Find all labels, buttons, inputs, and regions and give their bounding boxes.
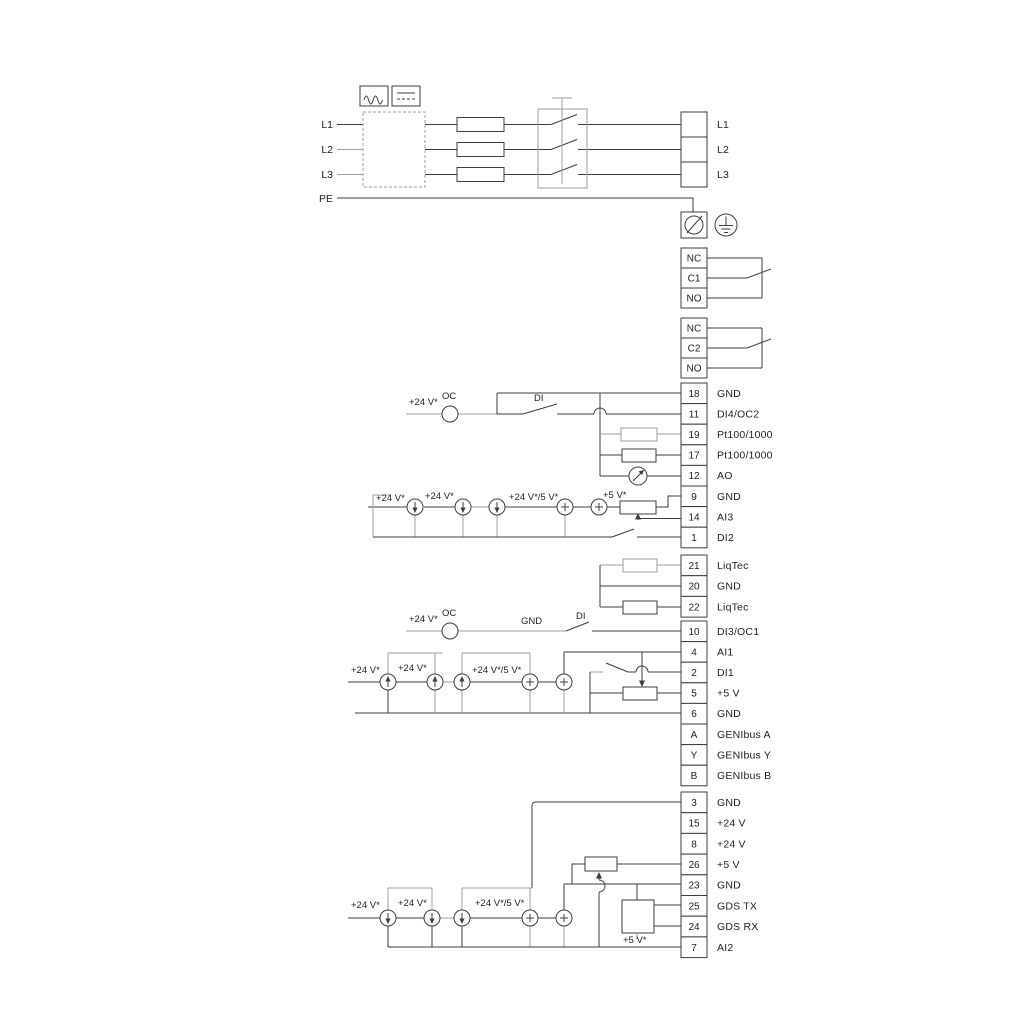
voltage-source-icon	[556, 674, 572, 690]
terminal-label: GDS TX	[717, 900, 757, 912]
wire-label-oc: OC	[442, 608, 456, 619]
terminal-label: Pt100/1000	[717, 429, 773, 441]
potentiometer-icon	[585, 857, 617, 871]
terminal-label: +5 V	[717, 859, 740, 871]
terminal-number: 26	[688, 860, 700, 871]
pt100-resistor-icon	[600, 428, 681, 462]
relay-contact	[707, 258, 771, 368]
current-source-icon	[427, 674, 443, 690]
terminal-number: 19	[688, 430, 700, 441]
mains-wiring	[337, 115, 693, 213]
voltage-source-icon	[591, 499, 607, 515]
terminal-label: L1	[717, 119, 729, 131]
terminal-label: GND	[717, 388, 741, 400]
liqtec-resistor-icon	[623, 601, 657, 614]
wire-label-di: DI	[534, 393, 544, 404]
current-sink-icon	[455, 499, 471, 515]
terminal-label: AI2	[717, 942, 733, 954]
wire-label-v24: +24 V*	[398, 663, 427, 674]
current-sink-icon	[424, 910, 440, 926]
mains-label-pe: PE	[319, 193, 333, 205]
relay-terminal-label: NC	[687, 324, 701, 335]
terminal-number: 18	[688, 389, 700, 400]
liqtec-terminal-block: 21LiqTec20GND22LiqTec	[681, 555, 749, 617]
io-terminal-block-b: 10DI3/OC14AI12DI15+5 V6GNDAGENIbus AYGEN…	[681, 621, 771, 786]
terminal-number: 17	[688, 451, 700, 462]
ai1-wiring	[348, 652, 681, 713]
terminal-number: 24	[688, 922, 700, 933]
terminal-label: GENIbus B	[717, 770, 771, 782]
terminal-cell	[681, 137, 707, 162]
terminal-label: LiqTec	[717, 601, 749, 613]
mains-input-labels: L1 L2 L3 PE	[319, 119, 333, 205]
wire-label-v24: +24 V*	[425, 491, 454, 502]
dc-symbol-icon	[392, 86, 420, 106]
current-sink-icon	[407, 499, 423, 515]
current-source-icon	[380, 674, 396, 690]
terminal-number: A	[691, 730, 698, 741]
terminal-label: DI3/OC1	[717, 626, 759, 638]
wire-label-v24_5: +24 V*/5 V*	[509, 492, 559, 503]
voltage-source-icon	[556, 910, 572, 926]
mains-output-terminal-block: L1L2L3	[681, 112, 729, 187]
terminal-label: AI1	[717, 646, 733, 658]
io-terminal-block-c: 3GND15+24 V8+24 V26+5 V23GND25GDS TX24GD…	[681, 792, 758, 958]
ao-meter-icon	[600, 467, 681, 485]
terminal-label: GND	[717, 797, 741, 809]
mains-label-l2: L2	[321, 144, 333, 156]
terminal-label: L2	[717, 144, 729, 156]
terminal-number: 21	[688, 561, 700, 572]
terminal-label: L3	[717, 169, 729, 181]
terminal-number: B	[691, 771, 698, 782]
open-collector-icon	[442, 406, 458, 422]
wire-label-v24: +24 V*	[409, 397, 438, 408]
terminal-label: GND	[717, 581, 741, 593]
terminal-number: 11	[689, 409, 700, 420]
terminal-number: 22	[688, 602, 700, 613]
liqtec-wiring	[600, 559, 681, 614]
terminal-label: +24 V	[717, 838, 746, 850]
relay-2-terminal-block: NCC2NO	[681, 318, 707, 378]
terminal-number: 25	[688, 901, 700, 912]
ground-icon	[715, 214, 737, 236]
relay-1-terminal-block: NCC1NO	[681, 248, 707, 308]
current-source-icon	[454, 674, 470, 690]
terminal-number: 3	[691, 798, 697, 809]
wire-label-gnd: GND	[521, 616, 542, 627]
terminal-number: 14	[688, 512, 700, 523]
terminal-number: 20	[688, 582, 700, 593]
potentiometer-icon	[623, 687, 657, 700]
wire-label-v24: +24 V*	[398, 898, 427, 909]
mains-label-l1: L1	[321, 119, 333, 131]
terminal-number: 15	[688, 819, 700, 830]
terminal-number: 8	[691, 839, 697, 850]
potentiometer-icon	[620, 501, 656, 514]
liqtec-resistor-icon	[623, 559, 657, 572]
terminal-cell	[681, 112, 707, 137]
terminal-number: 4	[691, 647, 697, 658]
terminal-number: 12	[688, 471, 700, 482]
wire-label-v24: +24 V*	[409, 614, 438, 625]
voltage-source-icon	[557, 499, 573, 515]
terminal-label: GDS RX	[717, 921, 758, 933]
relay-terminal-label: C2	[688, 344, 701, 355]
current-sink-icon	[489, 499, 505, 515]
terminal-label: GENIbus A	[717, 729, 771, 741]
wire-label-v24: +24 V*	[351, 665, 380, 676]
wire-label-v24_5: +24 V*/5 V*	[475, 898, 525, 909]
terminal-label: GND	[717, 708, 741, 720]
terminal-label: LiqTec	[717, 560, 749, 572]
wire-label-v24: +24 V*	[376, 493, 405, 504]
wire-label-di: DI	[576, 611, 586, 622]
gds-sensor-box	[622, 884, 681, 939]
terminal-cell	[681, 162, 707, 187]
wire-label-v5: +5 V*	[623, 935, 647, 946]
terminal-number: 1	[691, 533, 697, 544]
terminal-label: DI4/OC2	[717, 408, 759, 420]
mains-label-l3: L3	[321, 169, 333, 181]
terminal-label: +5 V	[717, 688, 740, 700]
terminal-label: GND	[717, 491, 741, 503]
current-sink-icon	[380, 910, 396, 926]
wire-label-v24: +24 V*	[351, 900, 380, 911]
wire-label-oc: OC	[442, 391, 456, 402]
terminal-number: 6	[691, 709, 697, 720]
terminal-number: 2	[691, 668, 697, 679]
relay-terminal-label: NC	[687, 254, 701, 265]
terminal-label: AO	[717, 470, 733, 482]
current-sink-icon	[454, 910, 470, 926]
terminal-label: Pt100/1000	[717, 450, 773, 462]
terminal-number: Y	[691, 750, 698, 761]
terminal-label: GENIbus Y	[717, 749, 771, 761]
io-terminal-block-a: 18GND11DI4/OC219Pt100/100017Pt100/100012…	[681, 383, 773, 548]
terminal-number: 23	[688, 881, 700, 892]
terminal-number: 7	[691, 943, 697, 954]
open-collector-icon	[442, 623, 458, 639]
relay-terminal-label: NO	[687, 364, 702, 375]
ac-symbol-icon	[360, 86, 388, 106]
terminal-number: 10	[688, 627, 700, 638]
terminal-label: DI2	[717, 532, 734, 544]
terminal-label: DI1	[717, 667, 734, 679]
fuse-icon	[457, 118, 504, 182]
terminal-number: 9	[691, 492, 697, 503]
pe-screw-terminal-icon	[681, 212, 707, 238]
terminal-label: GND	[717, 880, 741, 892]
relay-terminal-label: NO	[687, 294, 702, 305]
wiring-diagram-page: L1 L2 L3 PE	[0, 0, 1024, 1024]
relay-terminal-label: C1	[688, 274, 701, 285]
terminal-label: AI3	[717, 511, 733, 523]
terminal-label: +24 V	[717, 818, 746, 830]
voltage-source-icon	[522, 910, 538, 926]
terminal-number: 5	[691, 689, 697, 700]
wire-label-v5: +5 V*	[603, 490, 627, 501]
wiring-diagram-svg: L1 L2 L3 PE	[0, 0, 1024, 1024]
wire-label-v24_5: +24 V*/5 V*	[472, 665, 522, 676]
voltage-source-icon	[522, 674, 538, 690]
emc-filter-box	[363, 112, 425, 187]
